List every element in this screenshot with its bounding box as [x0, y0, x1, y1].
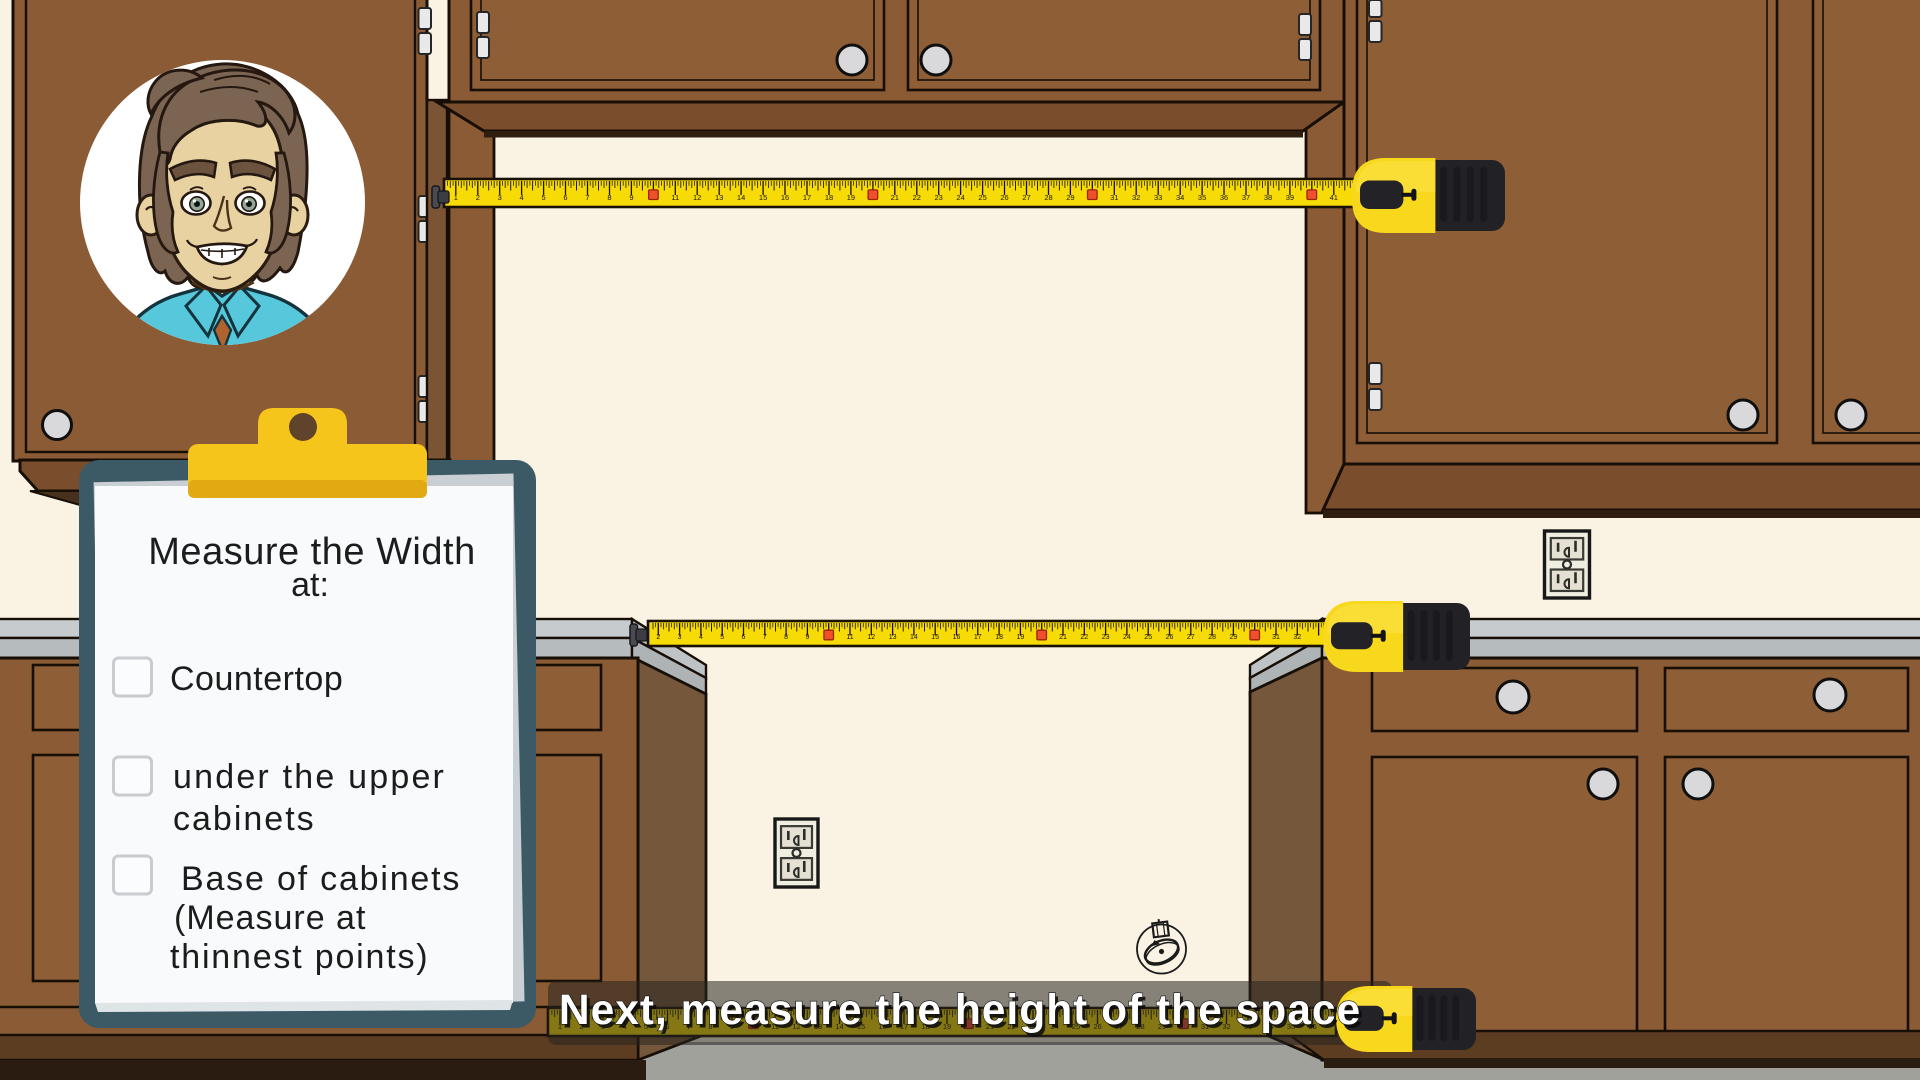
- svg-text:thinnest points): thinnest points): [170, 938, 429, 976]
- svg-text:28: 28: [1044, 193, 1052, 202]
- svg-text:Countertop: Countertop: [170, 660, 343, 698]
- svg-text:33: 33: [1154, 193, 1162, 202]
- svg-text:3: 3: [678, 634, 682, 641]
- svg-text:13: 13: [889, 634, 897, 641]
- svg-text:8: 8: [607, 193, 611, 202]
- svg-text:6: 6: [742, 634, 746, 641]
- svg-text:32: 32: [1293, 634, 1301, 641]
- svg-text:Next, measure the height of th: Next, measure the height of the space: [559, 987, 1361, 1034]
- svg-text:15: 15: [759, 193, 767, 202]
- svg-text:26: 26: [1166, 634, 1174, 641]
- svg-text:16: 16: [953, 634, 961, 641]
- svg-text:12: 12: [693, 193, 701, 202]
- svg-text:(Measure at: (Measure at: [174, 899, 366, 937]
- svg-text:3: 3: [498, 193, 502, 202]
- svg-text:31: 31: [1110, 193, 1118, 202]
- svg-text:19: 19: [1017, 634, 1025, 641]
- svg-text:18: 18: [995, 634, 1003, 641]
- svg-text:11: 11: [671, 193, 679, 202]
- svg-text:29: 29: [1066, 193, 1074, 202]
- svg-text:41: 41: [1330, 193, 1338, 202]
- svg-text:2: 2: [656, 634, 660, 641]
- svg-text:32: 32: [1132, 193, 1140, 202]
- svg-text:31: 31: [1272, 634, 1280, 641]
- svg-text:at:: at:: [291, 566, 329, 604]
- svg-text:37: 37: [1242, 193, 1250, 202]
- svg-text:29: 29: [1230, 634, 1238, 641]
- svg-text:39: 39: [1286, 193, 1294, 202]
- svg-text:36: 36: [1220, 193, 1228, 202]
- svg-text:25: 25: [1144, 634, 1152, 641]
- svg-text:21: 21: [891, 193, 899, 202]
- svg-text:1: 1: [454, 193, 458, 202]
- svg-text:14: 14: [737, 193, 745, 202]
- svg-text:2: 2: [476, 193, 480, 202]
- svg-text:4: 4: [520, 193, 524, 202]
- svg-text:27: 27: [1187, 634, 1195, 641]
- svg-text:5: 5: [542, 193, 546, 202]
- svg-text:24: 24: [956, 193, 964, 202]
- svg-text:4: 4: [699, 634, 703, 641]
- svg-text:27: 27: [1022, 193, 1030, 202]
- svg-text:19: 19: [847, 193, 855, 202]
- svg-text:35: 35: [1198, 193, 1206, 202]
- svg-text:6: 6: [563, 193, 567, 202]
- svg-text:38: 38: [1264, 193, 1272, 202]
- svg-text:23: 23: [935, 193, 943, 202]
- svg-text:34: 34: [1176, 193, 1184, 202]
- svg-text:5: 5: [720, 634, 724, 641]
- svg-text:14: 14: [910, 634, 918, 641]
- svg-text:26: 26: [1000, 193, 1008, 202]
- svg-text:9: 9: [629, 193, 633, 202]
- svg-text:11: 11: [846, 634, 853, 641]
- svg-text:17: 17: [974, 634, 982, 641]
- svg-text:22: 22: [1080, 634, 1088, 641]
- svg-text:23: 23: [1102, 634, 1110, 641]
- svg-text:8: 8: [784, 634, 788, 641]
- svg-text:9: 9: [805, 634, 809, 641]
- svg-text:13: 13: [715, 193, 723, 202]
- svg-text:25: 25: [978, 193, 986, 202]
- svg-text:28: 28: [1208, 634, 1216, 641]
- svg-text:7: 7: [585, 193, 589, 202]
- svg-text:16: 16: [781, 193, 789, 202]
- svg-text:21: 21: [1059, 634, 1067, 641]
- svg-text:cabinets: cabinets: [173, 800, 316, 838]
- svg-text:Base of cabinets: Base of cabinets: [181, 860, 461, 898]
- svg-text:under the upper: under the upper: [173, 758, 446, 796]
- svg-text:24: 24: [1123, 634, 1131, 641]
- svg-text:22: 22: [913, 193, 921, 202]
- svg-text:17: 17: [803, 193, 811, 202]
- svg-text:18: 18: [825, 193, 833, 202]
- svg-text:7: 7: [763, 634, 767, 641]
- svg-text:12: 12: [867, 634, 875, 641]
- svg-text:15: 15: [931, 634, 939, 641]
